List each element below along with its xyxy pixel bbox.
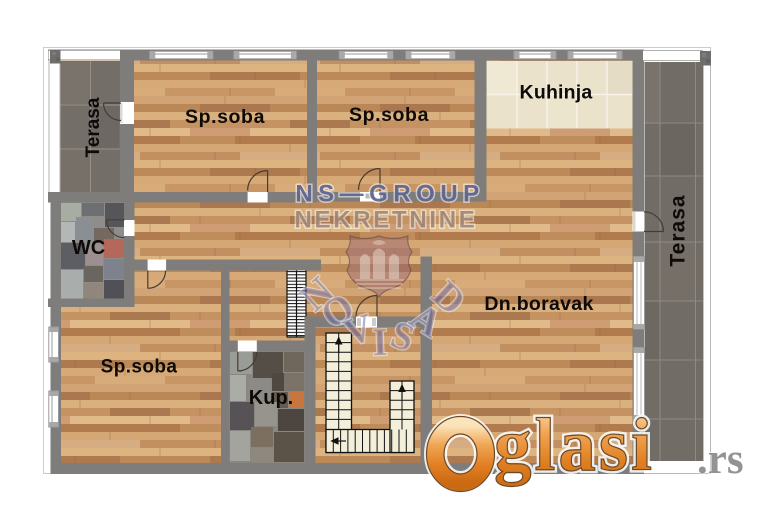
svg-text:WC: WC bbox=[72, 237, 105, 259]
svg-text:Sp.soba: Sp.soba bbox=[185, 106, 265, 128]
svg-text:Sp.soba: Sp.soba bbox=[349, 104, 429, 126]
svg-text:Kuhinja: Kuhinja bbox=[520, 82, 593, 104]
svg-text:Dn.boravak: Dn.boravak bbox=[484, 293, 593, 315]
svg-text:Terasa: Terasa bbox=[667, 194, 690, 266]
svg-text:Sp.soba: Sp.soba bbox=[101, 357, 178, 378]
svg-text:.rs: .rs bbox=[697, 436, 744, 483]
svg-text:I: I bbox=[372, 321, 389, 365]
svg-text:NS—GROUP: NS—GROUP bbox=[295, 181, 484, 208]
svg-text:Terasa: Terasa bbox=[83, 97, 104, 157]
svg-text:Kup.: Kup. bbox=[249, 387, 293, 409]
svg-text:glasi: glasi bbox=[494, 404, 655, 487]
svg-text:NEKRETNINE: NEKRETNINE bbox=[294, 207, 477, 234]
